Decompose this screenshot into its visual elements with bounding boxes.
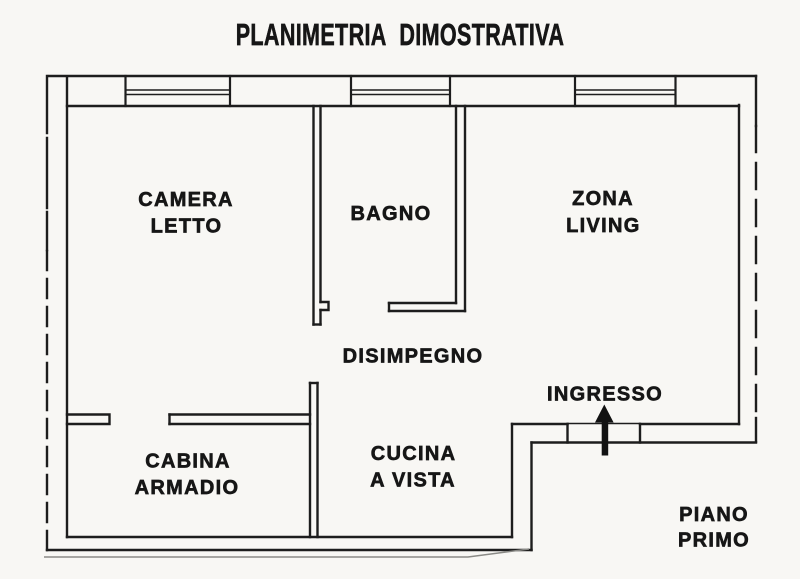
- svg-text:CUCINA: CUCINA: [371, 443, 457, 465]
- svg-text:DISIMPEGNO: DISIMPEGNO: [343, 346, 484, 368]
- svg-text:ARMADIO: ARMADIO: [135, 477, 240, 499]
- svg-text:ZONA: ZONA: [572, 188, 634, 210]
- svg-text:PRIMO: PRIMO: [678, 530, 750, 552]
- svg-text:PIANO: PIANO: [679, 504, 749, 526]
- svg-text:CABINA: CABINA: [145, 451, 231, 473]
- svg-text:A VISTA: A VISTA: [370, 469, 456, 491]
- svg-text:PLANIMETRIA DIMOSTRATIVA: PLANIMETRIA DIMOSTRATIVA: [236, 17, 565, 52]
- svg-text:LIVING: LIVING: [566, 215, 640, 237]
- svg-text:BAGNO: BAGNO: [351, 203, 432, 225]
- svg-text:INGRESSO: INGRESSO: [547, 384, 663, 406]
- svg-text:CAMERA: CAMERA: [138, 189, 234, 211]
- svg-text:LETTO: LETTO: [151, 215, 223, 237]
